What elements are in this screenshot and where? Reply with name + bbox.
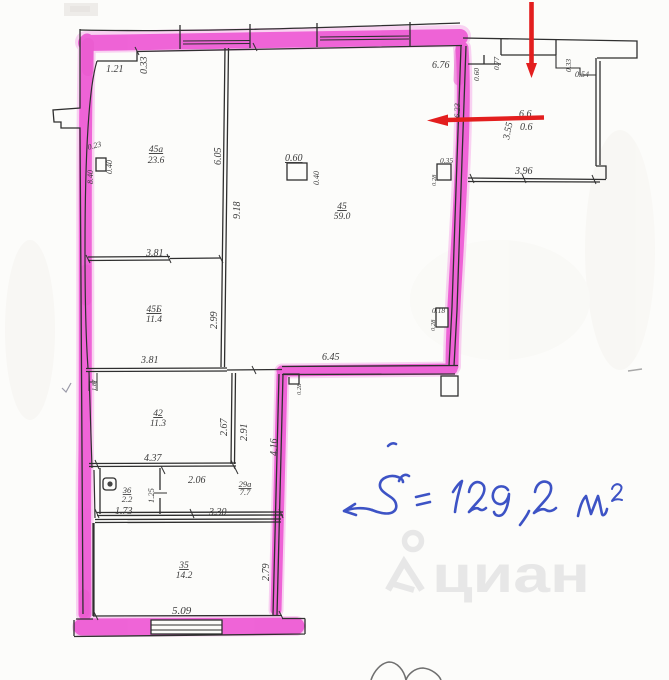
svg-text:42: 42	[153, 409, 163, 419]
svg-text:4.37: 4.37	[144, 453, 163, 464]
svg-text:59.0: 59.0	[334, 212, 351, 222]
svg-text:0.28: 0.28	[296, 383, 303, 395]
svg-text:2.99: 2.99	[209, 312, 220, 330]
svg-text:1.25: 1.25	[146, 488, 156, 503]
svg-text:3.81: 3.81	[140, 355, 159, 366]
svg-text:0.33: 0.33	[564, 59, 573, 72]
svg-text:0.6: 0.6	[520, 122, 533, 133]
svg-text:6.45: 6.45	[322, 352, 340, 363]
svg-text:0.18: 0.18	[432, 306, 445, 315]
svg-text:7.7: 7.7	[240, 487, 251, 497]
svg-text:0.40: 0.40	[312, 171, 321, 185]
svg-text:0.28: 0.28	[431, 174, 438, 186]
svg-text:0.77: 0.77	[492, 57, 501, 70]
svg-text:6.05: 6.05	[213, 148, 224, 166]
svg-text:11.3: 11.3	[150, 419, 166, 429]
svg-text:1.21: 1.21	[106, 64, 124, 75]
svg-text:45Б: 45Б	[146, 305, 162, 315]
svg-text:3.30: 3.30	[208, 507, 227, 518]
svg-text:6.76: 6.76	[432, 60, 450, 71]
svg-text:2.91: 2.91	[239, 424, 250, 442]
svg-text:1.87: 1.87	[91, 379, 98, 391]
svg-text:3.81: 3.81	[145, 248, 164, 259]
svg-text:0.54: 0.54	[575, 70, 589, 79]
svg-text:6.23: 6.23	[452, 103, 462, 118]
svg-text:0.33: 0.33	[139, 57, 150, 75]
svg-text:1.73: 1.73	[115, 506, 133, 517]
svg-text:14.2: 14.2	[176, 571, 193, 581]
svg-text:2.2: 2.2	[122, 494, 133, 504]
svg-text:3.96: 3.96	[514, 166, 533, 177]
svg-text:0.60: 0.60	[285, 153, 303, 164]
svg-text:11.4: 11.4	[146, 315, 162, 325]
svg-text:5.09: 5.09	[172, 605, 192, 617]
svg-text:2.67: 2.67	[219, 418, 230, 437]
svg-text:8.40: 8.40	[86, 170, 95, 184]
svg-text:0.60: 0.60	[472, 68, 481, 81]
svg-text:45: 45	[337, 202, 347, 212]
svg-text:35: 35	[178, 561, 189, 571]
svg-text:циан: циан	[432, 546, 590, 604]
svg-text:45а: 45а	[149, 145, 164, 155]
svg-text:2.06: 2.06	[188, 475, 206, 486]
svg-text:0.35: 0.35	[440, 156, 453, 165]
svg-text:4.16: 4.16	[269, 439, 280, 457]
svg-text:2.79: 2.79	[261, 564, 272, 582]
svg-text:23.6: 23.6	[148, 156, 165, 166]
svg-text:9.18: 9.18	[232, 202, 243, 220]
svg-text:0.28: 0.28	[430, 319, 437, 331]
svg-text:0.40: 0.40	[105, 160, 114, 174]
